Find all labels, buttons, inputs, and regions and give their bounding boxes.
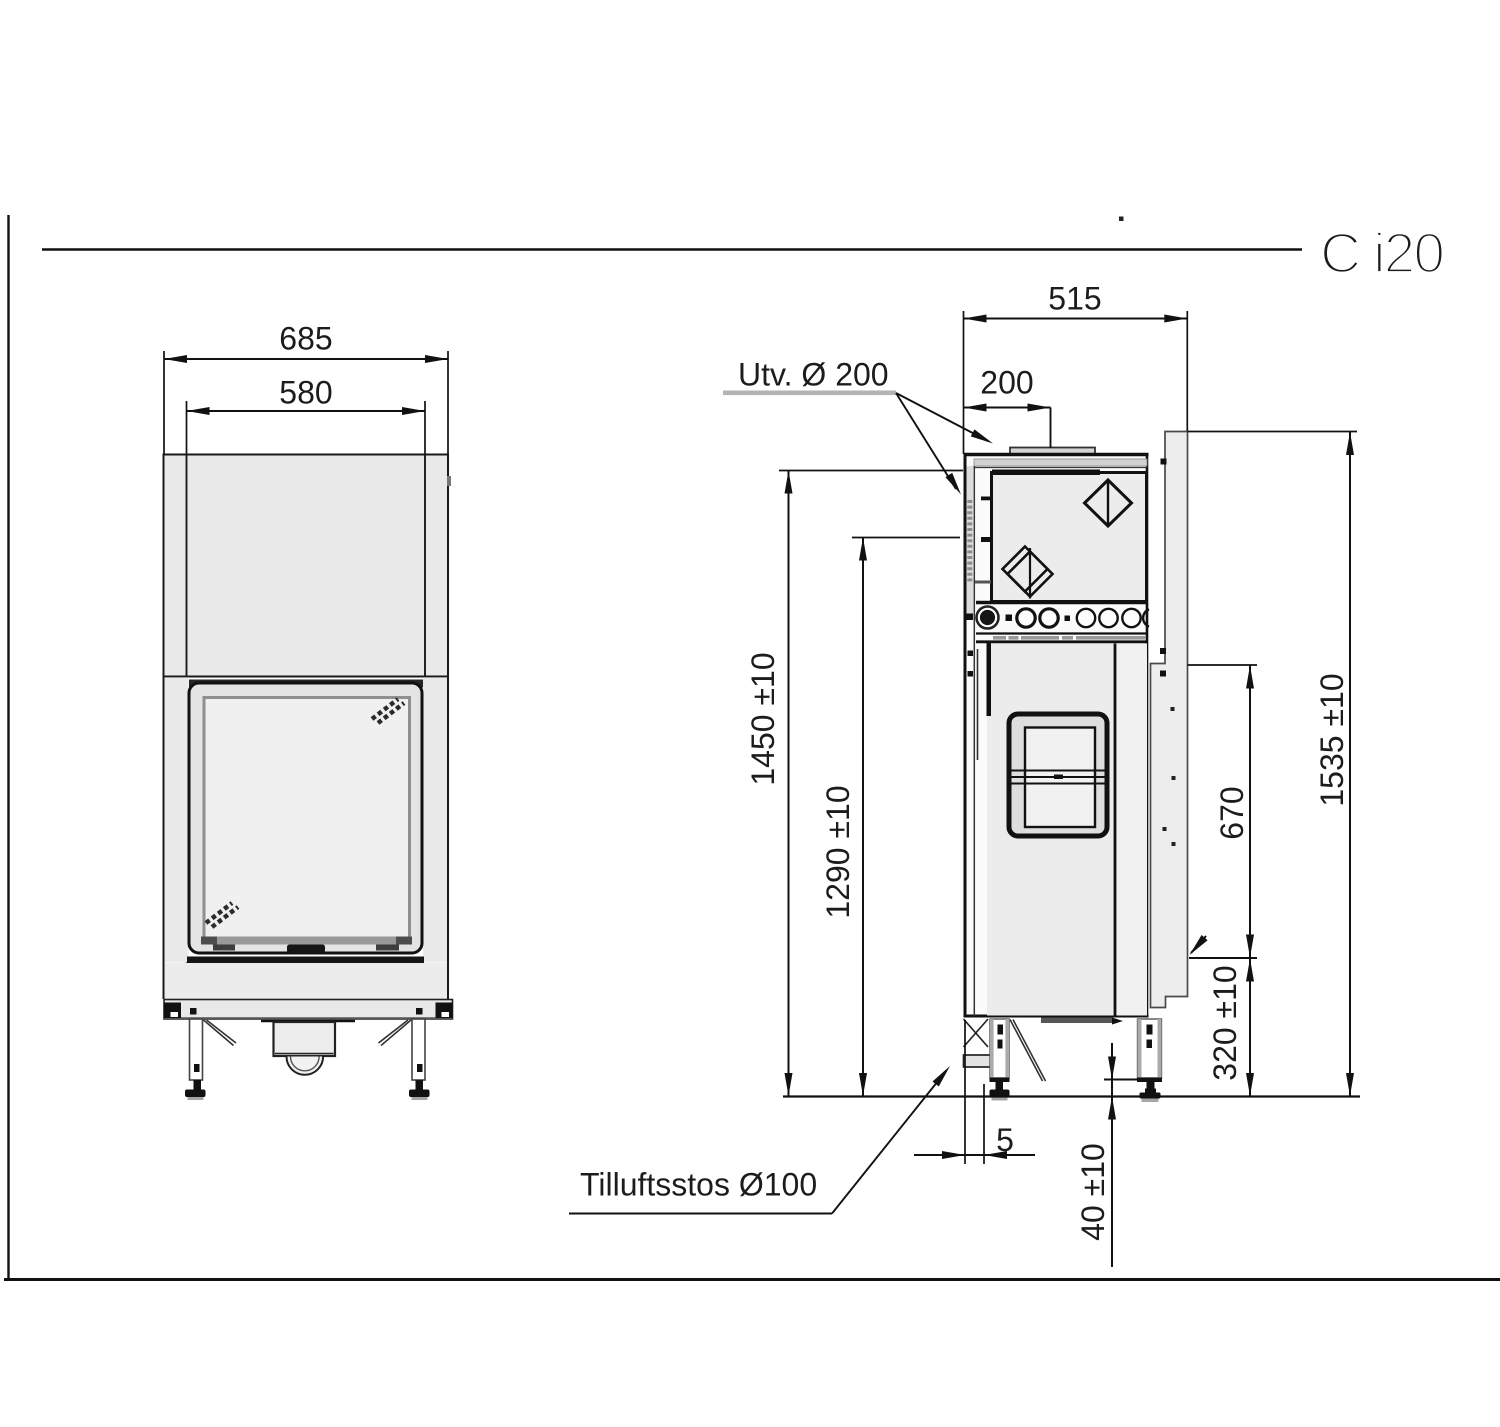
- svg-text:C i20: C i20: [1320, 222, 1443, 286]
- svg-text:685: 685: [279, 321, 332, 357]
- svg-text:40 ±10: 40 ±10: [1075, 1143, 1111, 1241]
- svg-text:320 ±10: 320 ±10: [1207, 965, 1243, 1080]
- svg-text:Tilluftsstos Ø100: Tilluftsstos Ø100: [580, 1167, 817, 1203]
- svg-text:200: 200: [980, 365, 1033, 401]
- svg-text:5: 5: [996, 1122, 1014, 1158]
- svg-text:515: 515: [1048, 281, 1101, 317]
- svg-text:1450 ±10: 1450 ±10: [745, 652, 781, 785]
- svg-text:Utv. Ø 200: Utv. Ø 200: [738, 357, 889, 393]
- svg-text:1535 ±10: 1535 ±10: [1314, 673, 1350, 806]
- svg-text:670: 670: [1214, 786, 1250, 839]
- svg-text:580: 580: [279, 375, 332, 411]
- svg-text:1290 ±10: 1290 ±10: [820, 785, 856, 918]
